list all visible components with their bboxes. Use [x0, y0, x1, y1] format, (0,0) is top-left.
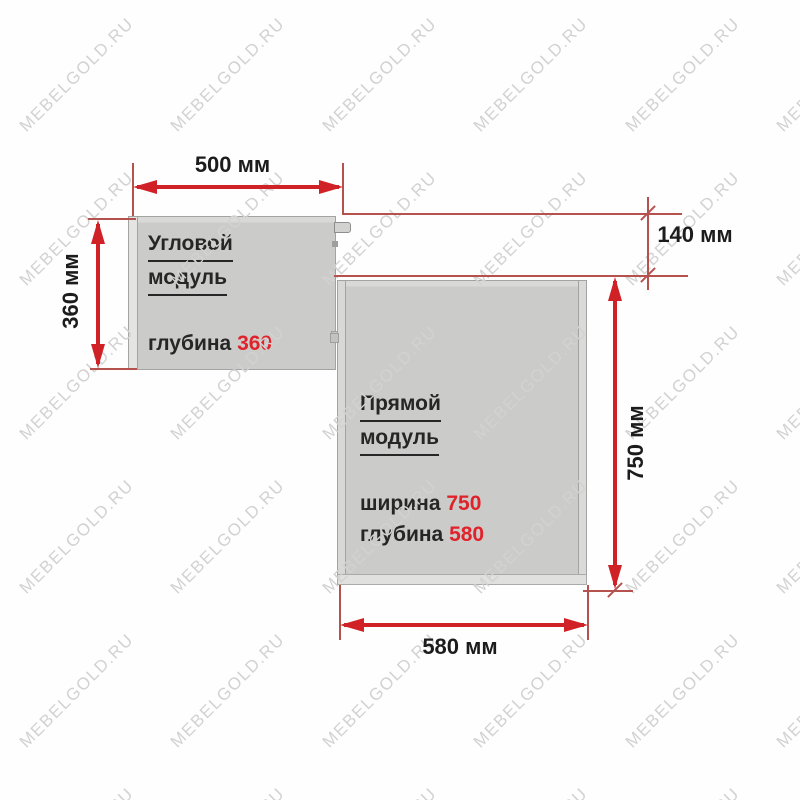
straight-module-left-hinge — [330, 333, 339, 343]
watermark-text: MEBELGOLD.RU — [773, 168, 800, 290]
straight-module-spec-depth-value: 580 — [449, 523, 484, 546]
arrow-shaft — [96, 224, 100, 364]
dim-reference-line — [334, 275, 688, 277]
watermark-text: MEBELGOLD.RU — [622, 630, 744, 752]
watermark-text: MEBELGOLD.RU — [167, 630, 289, 752]
furniture-dimension-diagram: MEBELGOLD.RUMEBELGOLD.RUMEBELGOLD.RUMEBE… — [0, 0, 800, 800]
watermark-text: MEBELGOLD.RU — [470, 784, 592, 800]
dim-arrow-top-width — [133, 180, 343, 194]
watermark-text: MEBELGOLD.RU — [773, 476, 800, 598]
straight-module-spec-width-value: 750 — [446, 492, 481, 515]
watermark-text: MEBELGOLD.RU — [16, 630, 138, 752]
corner-module-mid-hinge — [332, 241, 338, 247]
straight-module-front-strip — [337, 574, 587, 585]
watermark-text: MEBELGOLD.RU — [773, 322, 800, 444]
watermark-text: MEBELGOLD.RU — [167, 14, 289, 136]
watermark-text: MEBELGOLD.RU — [773, 14, 800, 136]
watermark-text: MEBELGOLD.RU — [773, 630, 800, 752]
dim-label-left-depth: 360 мм — [58, 236, 84, 346]
arrow-shaft — [344, 623, 584, 627]
watermark-text: MEBELGOLD.RU — [319, 784, 441, 800]
arrow-head-right-icon — [319, 180, 343, 194]
dim-arrow-left-depth — [91, 220, 105, 368]
dim-label-right-height: 750 мм — [623, 388, 649, 498]
dim-label-bottom-width: 580 мм — [390, 634, 530, 660]
watermark-text: MEBELGOLD.RU — [470, 14, 592, 136]
dim-reference-line — [583, 590, 633, 592]
watermark-text: MEBELGOLD.RU — [773, 784, 800, 800]
dim-extension-line — [90, 368, 137, 370]
arrow-head-down-icon — [91, 344, 105, 368]
dim-arrow-bottom-width — [340, 618, 588, 632]
arrow-shaft — [137, 185, 339, 189]
watermark-text: MEBELGOLD.RU — [622, 784, 744, 800]
straight-module-title-line2: модуль — [360, 422, 439, 456]
dim-reference-line — [343, 213, 682, 215]
dim-label-top-width: 500 мм — [160, 152, 305, 178]
dim-label-right-offset: 140 мм — [650, 222, 740, 248]
arrow-shaft — [613, 281, 617, 585]
watermark-text: MEBELGOLD.RU — [16, 14, 138, 136]
watermark-text: MEBELGOLD.RU — [470, 168, 592, 290]
watermark-text: MEBELGOLD.RU — [167, 784, 289, 800]
watermark-text: MEBELGOLD.RU — [16, 784, 138, 800]
corner-module-top-hinge — [334, 222, 351, 233]
corner-module-spec-label: глубина — [148, 332, 231, 355]
arrow-head-down-icon — [608, 565, 622, 589]
watermark-text: MEBELGOLD.RU — [319, 14, 441, 136]
watermark-text: MEBELGOLD.RU — [167, 476, 289, 598]
arrow-head-right-icon — [564, 618, 588, 632]
dim-arrow-right-height — [608, 277, 622, 589]
watermark-text: MEBELGOLD.RU — [622, 14, 744, 136]
watermark-text: MEBELGOLD.RU — [16, 476, 138, 598]
